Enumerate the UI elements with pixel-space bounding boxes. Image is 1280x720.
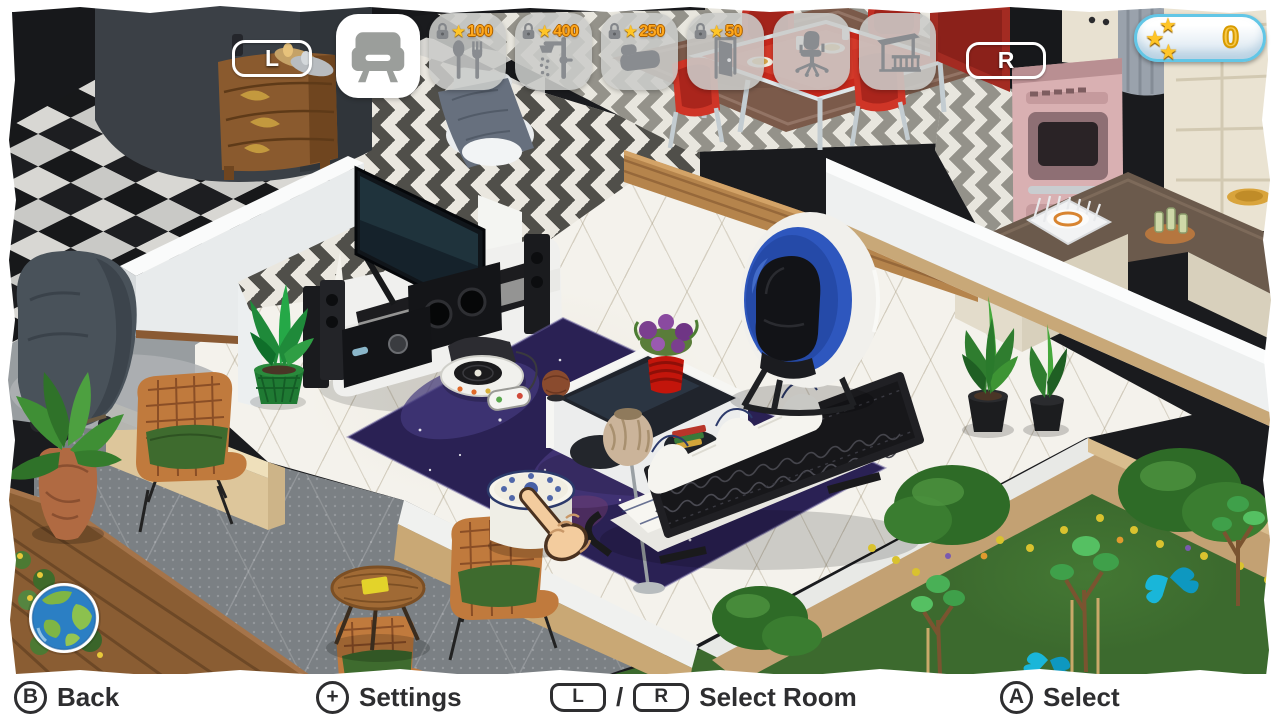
star-icon: ★	[623, 23, 638, 40]
back-label: Back	[57, 682, 119, 713]
tab-cost: 400	[553, 23, 578, 41]
tab-cost: 50	[725, 23, 742, 41]
r-shoulder-label: R	[998, 47, 1015, 74]
office-chair-icon	[787, 27, 837, 77]
star-icon: ★	[537, 23, 552, 40]
globe-icon	[24, 578, 104, 658]
bottom-hint-bar: B Back + Settings L / R Select Room A Se…	[0, 674, 1280, 720]
r-shoulder-button[interactable]: R	[966, 42, 1046, 79]
egg-chair	[730, 212, 880, 416]
r-button-icon: R	[633, 683, 689, 712]
room-scene	[0, 0, 1280, 720]
tab-bedroom[interactable]: ★ 250	[601, 13, 678, 90]
slash-separator: /	[616, 682, 623, 713]
back-prompt[interactable]: B Back	[14, 674, 119, 720]
star-icon: ★	[451, 23, 466, 40]
l-shoulder-button[interactable]: L	[232, 40, 312, 77]
select-prompt[interactable]: A Select	[1000, 674, 1120, 720]
world-map-button[interactable]	[24, 578, 104, 658]
star-counter: ★ ★ ★ 0	[1134, 14, 1266, 62]
select-room-label: Select Room	[699, 682, 857, 713]
tab-bathroom[interactable]: ★ 400	[515, 13, 592, 90]
tab-balcony[interactable]	[859, 13, 936, 90]
patio-table	[326, 567, 430, 662]
settings-label: Settings	[359, 682, 462, 713]
tab-hallway[interactable]: ★ 50	[687, 13, 764, 90]
plus-button-icon: +	[316, 681, 349, 714]
tab-cost: 100	[467, 23, 492, 41]
sapling-stakes	[928, 598, 1098, 678]
padlock-icon	[435, 22, 450, 41]
a-button-icon: A	[1000, 681, 1033, 714]
armchair-icon	[348, 26, 408, 86]
tab-living-room[interactable]	[336, 14, 420, 98]
tab-dining[interactable]: ★ 100	[429, 13, 506, 90]
tab-office[interactable]	[773, 13, 850, 90]
padlock-icon	[607, 22, 622, 41]
room-category-tabs: ★ 100 ★ 400	[336, 13, 936, 98]
l-button-icon: L	[550, 683, 606, 712]
l-shoulder-label: L	[265, 45, 279, 72]
padlock-icon	[693, 22, 708, 41]
settings-prompt[interactable]: + Settings	[316, 674, 462, 720]
stars-icon: ★ ★ ★	[1143, 13, 1185, 69]
padlock-icon	[521, 22, 536, 41]
b-button-icon: B	[14, 681, 47, 714]
game-screen: L R ★ 100	[0, 0, 1280, 720]
select-label: Select	[1043, 682, 1120, 713]
balcony-icon	[873, 27, 923, 77]
star-count-value: 0	[1222, 21, 1239, 55]
star-icon: ★	[709, 23, 724, 40]
tab-cost: 250	[639, 23, 664, 41]
hand-cursor-icon	[492, 474, 602, 574]
butterflies	[1022, 564, 1200, 682]
select-room-prompt[interactable]: L / R Select Room	[550, 674, 857, 720]
